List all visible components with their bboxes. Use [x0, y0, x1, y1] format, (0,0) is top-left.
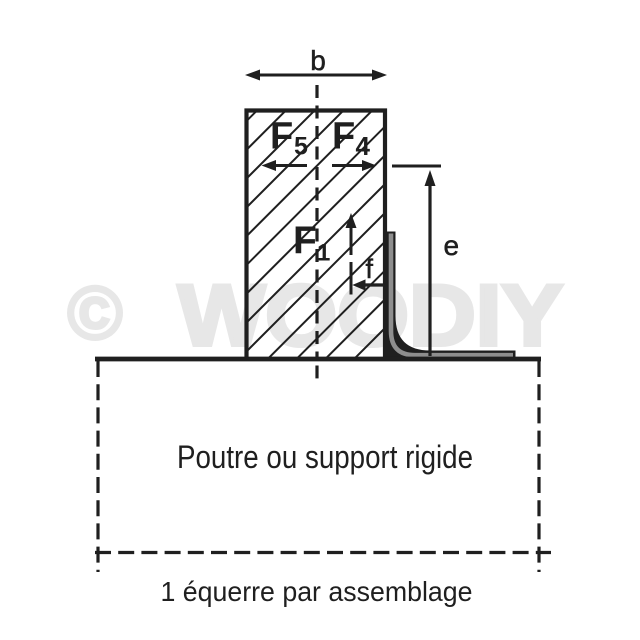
- svg-text:f: f: [366, 254, 374, 284]
- svg-text:b: b: [310, 45, 326, 76]
- svg-text:F: F: [270, 116, 293, 158]
- svg-text:1 équerre par assemblage: 1 équerre par assemblage: [161, 576, 473, 607]
- svg-text:5: 5: [294, 133, 308, 161]
- svg-text:4: 4: [356, 131, 371, 161]
- svg-text:F: F: [293, 220, 317, 263]
- svg-text:F: F: [332, 116, 355, 158]
- svg-text:Poutre ou support rigide: Poutre ou support rigide: [177, 439, 473, 475]
- svg-text:1: 1: [317, 240, 330, 267]
- svg-text:©: ©: [67, 271, 122, 355]
- svg-text:e: e: [444, 230, 460, 261]
